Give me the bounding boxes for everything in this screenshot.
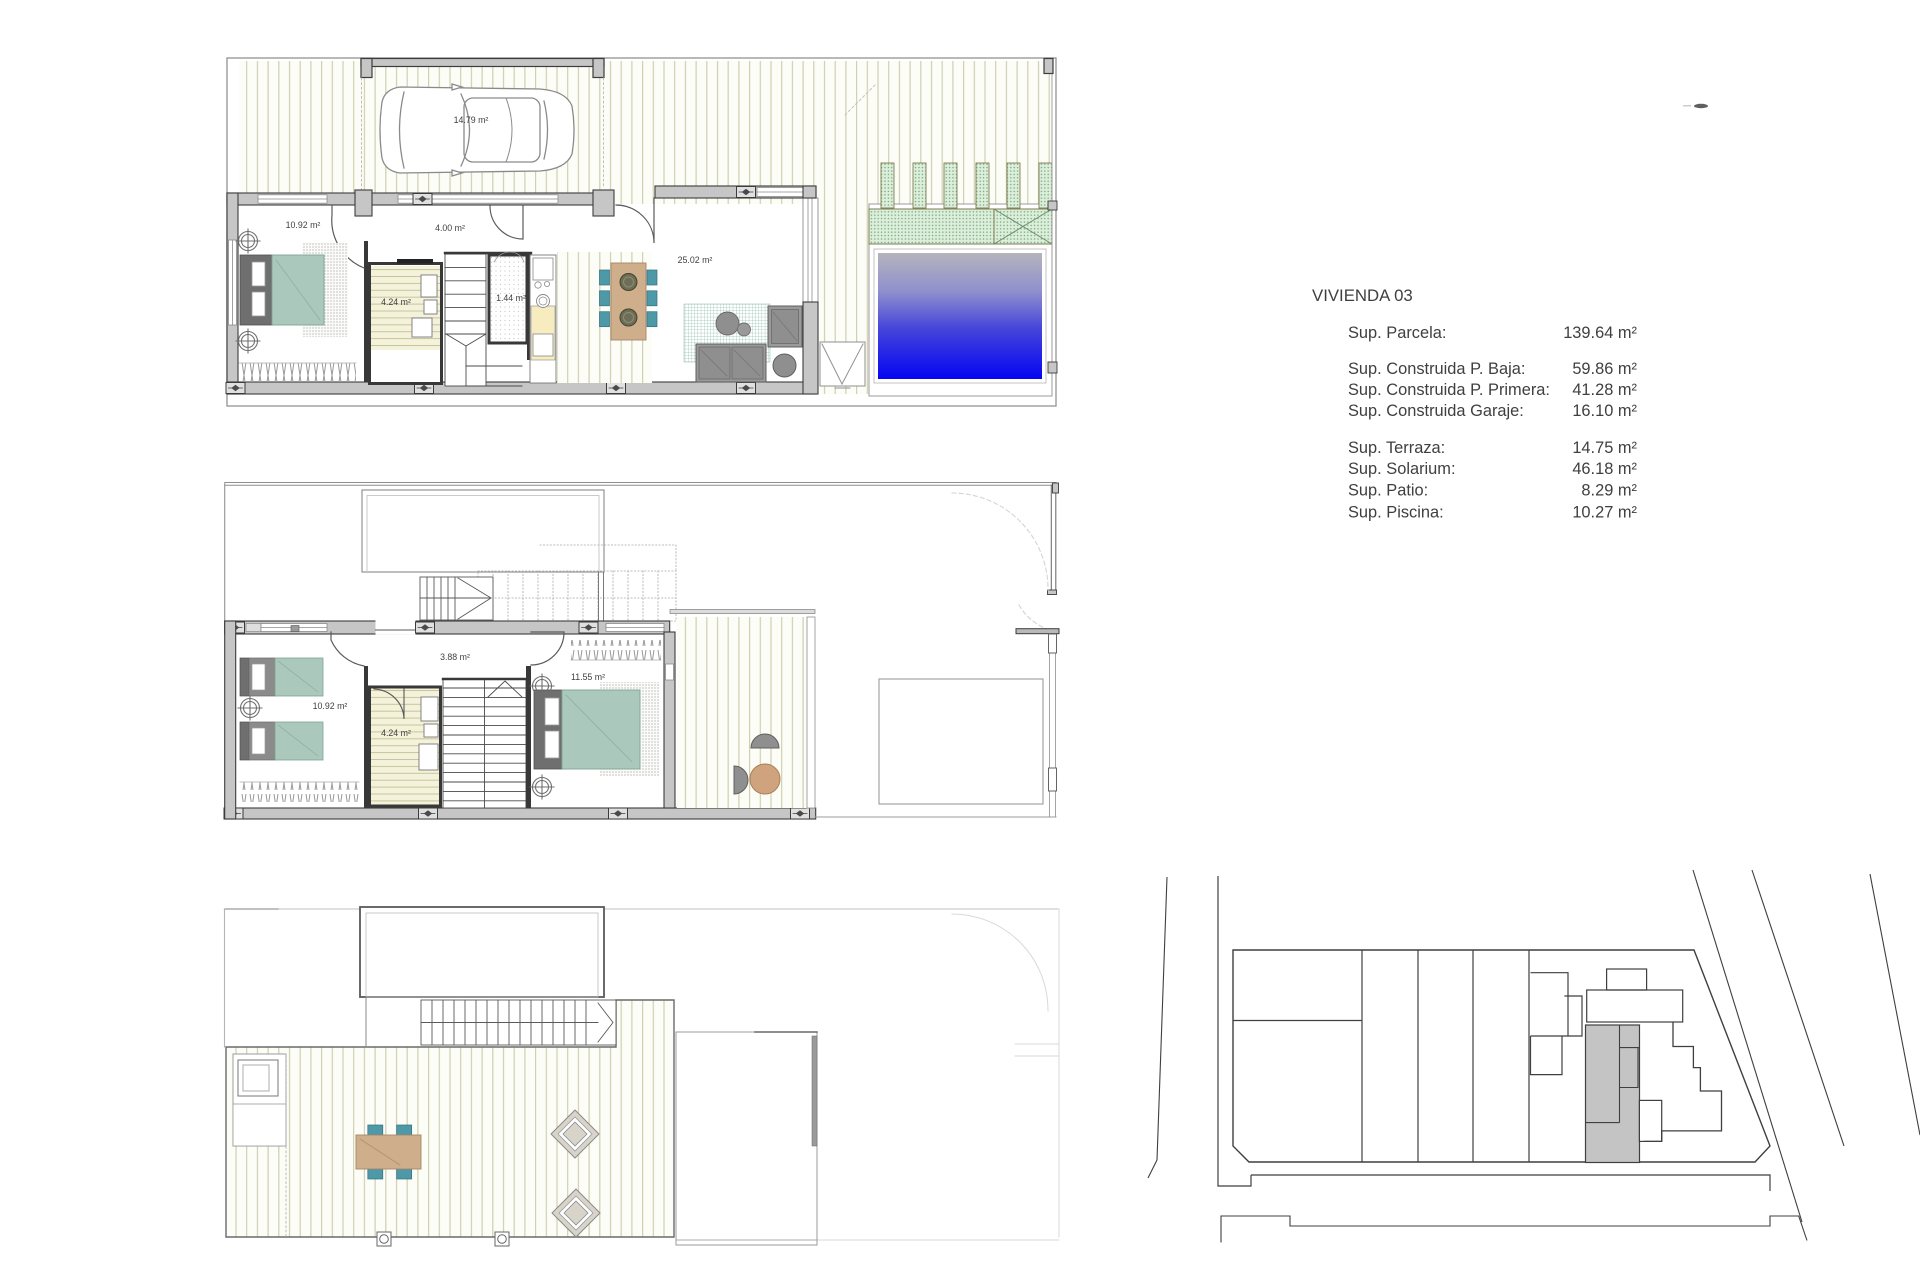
- svg-text:4.24 m²: 4.24 m²: [381, 297, 411, 307]
- svg-text:46.18 m²: 46.18 m²: [1572, 460, 1637, 478]
- svg-text:25.02 m²: 25.02 m²: [678, 255, 713, 265]
- svg-text:8.29 m²: 8.29 m²: [1581, 482, 1637, 500]
- svg-text:Sup. Solarium:: Sup. Solarium:: [1348, 460, 1456, 478]
- svg-text:Sup. Construida P. Baja:: Sup. Construida P. Baja:: [1348, 360, 1525, 378]
- svg-text:3.88 m²: 3.88 m²: [440, 652, 470, 662]
- svg-text:11.55 m²: 11.55 m²: [571, 672, 605, 682]
- svg-text:Sup. Patio:: Sup. Patio:: [1348, 482, 1428, 500]
- svg-text:Sup. Piscina:: Sup. Piscina:: [1348, 504, 1444, 522]
- svg-text:4.24 m²: 4.24 m²: [381, 728, 411, 738]
- svg-text:Sup. Construida P. Primera:: Sup. Construida P. Primera:: [1348, 381, 1550, 399]
- svg-text:10.27 m²: 10.27 m²: [1572, 504, 1637, 522]
- svg-text:Sup. Construida Garaje:: Sup. Construida Garaje:: [1348, 402, 1524, 420]
- svg-text:139.64 m²: 139.64 m²: [1563, 324, 1637, 342]
- svg-text:4.00 m²: 4.00 m²: [435, 223, 465, 233]
- svg-text:14.75 m²: 14.75 m²: [1572, 439, 1637, 457]
- svg-text:1.44 m²: 1.44 m²: [496, 293, 526, 303]
- svg-text:59.86 m²: 59.86 m²: [1572, 360, 1637, 378]
- svg-text:16.10 m²: 16.10 m²: [1572, 402, 1637, 420]
- svg-text:10.92 m²: 10.92 m²: [286, 220, 321, 230]
- svg-text:41.28 m²: 41.28 m²: [1572, 381, 1637, 399]
- svg-text:Sup. Parcela:: Sup. Parcela:: [1348, 324, 1446, 342]
- svg-text:14.79 m²: 14.79 m²: [454, 115, 489, 125]
- svg-text:VIVIENDA 03: VIVIENDA 03: [1312, 286, 1413, 305]
- svg-text:10.92 m²: 10.92 m²: [313, 701, 348, 711]
- svg-text:Sup. Terraza:: Sup. Terraza:: [1348, 439, 1445, 457]
